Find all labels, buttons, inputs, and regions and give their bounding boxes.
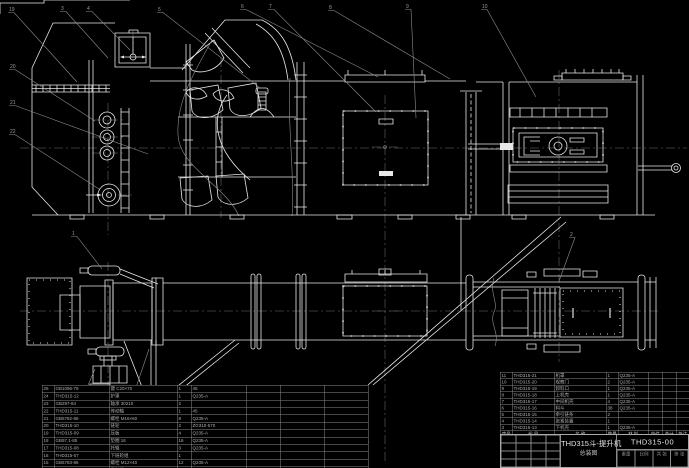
casing-walls (183, 44, 482, 215)
bom-table-left: 25GB1096-79键 C20×7014524THD315-12护罩1Q235… (42, 385, 368, 468)
drawing-title: THD315斗-提升机 (561, 440, 616, 448)
drive-station (468, 69, 681, 215)
balloon-leader (481, 10, 536, 98)
bom-row: 16THD315-07下链轮组1 (42, 452, 368, 459)
field-weight: 重量 (617, 450, 635, 467)
title-block-fields: 重量 比例 共 张 第 张 (617, 450, 689, 468)
bom-row: 21GB5782-86螺栓 M16×608Q235-A (42, 415, 368, 422)
balloon-label: 9 (406, 4, 409, 10)
bom-row: 18GB97.1-85垫圈 1616Q235-A (42, 437, 368, 444)
balloon-leader (71, 237, 102, 270)
bom-row: 17THD315-08托辊3Q235-A (42, 444, 368, 451)
drawing-number-cell: THD315-00 (617, 435, 689, 450)
bom-row: 20THD315-10链轮2ZG310-570 (42, 422, 368, 429)
balloon-leader (9, 106, 148, 155)
baseline (32, 215, 655, 219)
balloon-leader (60, 12, 108, 59)
field-sheet-no: 第 张 (671, 450, 689, 467)
balloon-label: 10 (482, 4, 488, 10)
balloon-leader (9, 135, 99, 190)
sheet-frame-corner (0, 0, 130, 14)
side-view (32, 20, 681, 219)
bom-row: 25GB1096-79键 C20×70145 (42, 385, 368, 392)
balloon-label: 20 (10, 64, 16, 70)
signature-grid (501, 435, 561, 468)
drawing-subtitle: 总装图 (561, 448, 616, 457)
inlet-flange (345, 70, 425, 82)
balloon-label: 8 (329, 5, 332, 11)
field-sheets: 共 张 (653, 450, 671, 467)
balloon-label: 7 (269, 4, 272, 10)
drawing-title-cell: THD315斗-提升机 总装图 (561, 435, 617, 468)
balloon-leader (559, 238, 575, 282)
balloon-leader (405, 10, 416, 119)
balloon-label: 22 (10, 129, 16, 135)
bom-row: 15GB5783-86螺栓 M12×4012Q235-A (42, 459, 368, 466)
bom-row: 24THD315-12护罩1Q235-A (42, 393, 368, 400)
drawing-number: THD315-00 (617, 435, 688, 450)
plan-casing (163, 269, 466, 349)
balloon-label: 21 (10, 100, 16, 106)
balloon-label: 19 (9, 7, 15, 13)
balloon-label: 5 (158, 7, 161, 13)
plan-boot (27, 278, 163, 345)
balloon-label: 6 (241, 4, 244, 10)
field-scale: 比例 (635, 450, 653, 467)
balloon-leader (157, 13, 260, 89)
balloon-label: 2 (570, 232, 573, 238)
plan-drive-head (466, 269, 656, 352)
balloon-label: 1 (72, 231, 75, 237)
balloon-leader (9, 70, 95, 122)
head-hood (150, 20, 503, 101)
cad-drawing-canvas: 3456789101920212212231817161514131211242… (0, 0, 689, 468)
bom-row: 23GB297-84轴承 302102 (42, 400, 368, 407)
balloon-label: 3 (61, 6, 64, 12)
balloon-label: 4 (87, 6, 90, 12)
balloon-leader (86, 12, 130, 51)
bom-row: 22THD315-11传动轴145 (42, 407, 368, 414)
title-block: THD315斗-提升机 总装图 THD315-00 重量 比例 共 张 第 张 (500, 434, 689, 468)
bom-and-titleblock: 11THD315-21机罩1Q235-A10THD315-20观察门2Q235-… (500, 372, 689, 468)
balloon-leader (328, 11, 450, 80)
bom-row: 19THD315-09压板4Q235-A (42, 430, 368, 437)
